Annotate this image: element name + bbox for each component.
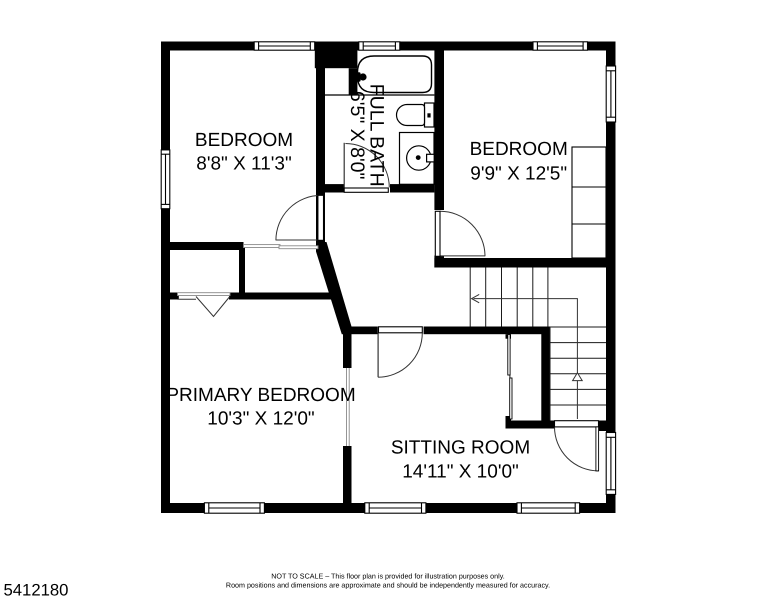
svg-text:9'9" X 12'5": 9'9" X 12'5" bbox=[470, 164, 567, 185]
svg-text:BEDROOM: BEDROOM bbox=[470, 139, 568, 160]
svg-text:PRIMARY BEDROOM: PRIMARY BEDROOM bbox=[166, 385, 355, 406]
svg-text:14'11" X 10'0": 14'11" X 10'0" bbox=[402, 461, 519, 482]
svg-text:NOT TO SCALE – This floor plan: NOT TO SCALE – This floor plan is provid… bbox=[271, 573, 505, 581]
svg-text:BEDROOM: BEDROOM bbox=[195, 130, 293, 151]
svg-text:8'8" X 11'3": 8'8" X 11'3" bbox=[196, 154, 291, 175]
svg-text:Room positions and dimensions: Room positions and dimensions are approx… bbox=[226, 581, 550, 589]
svg-text:SITTING ROOM: SITTING ROOM bbox=[391, 437, 530, 458]
svg-text:10'3" X 12'0": 10'3" X 12'0" bbox=[207, 409, 314, 430]
svg-text:5412180: 5412180 bbox=[4, 581, 69, 600]
svg-text:6'5" X 8'0": 6'5" X 8'0" bbox=[346, 91, 368, 180]
